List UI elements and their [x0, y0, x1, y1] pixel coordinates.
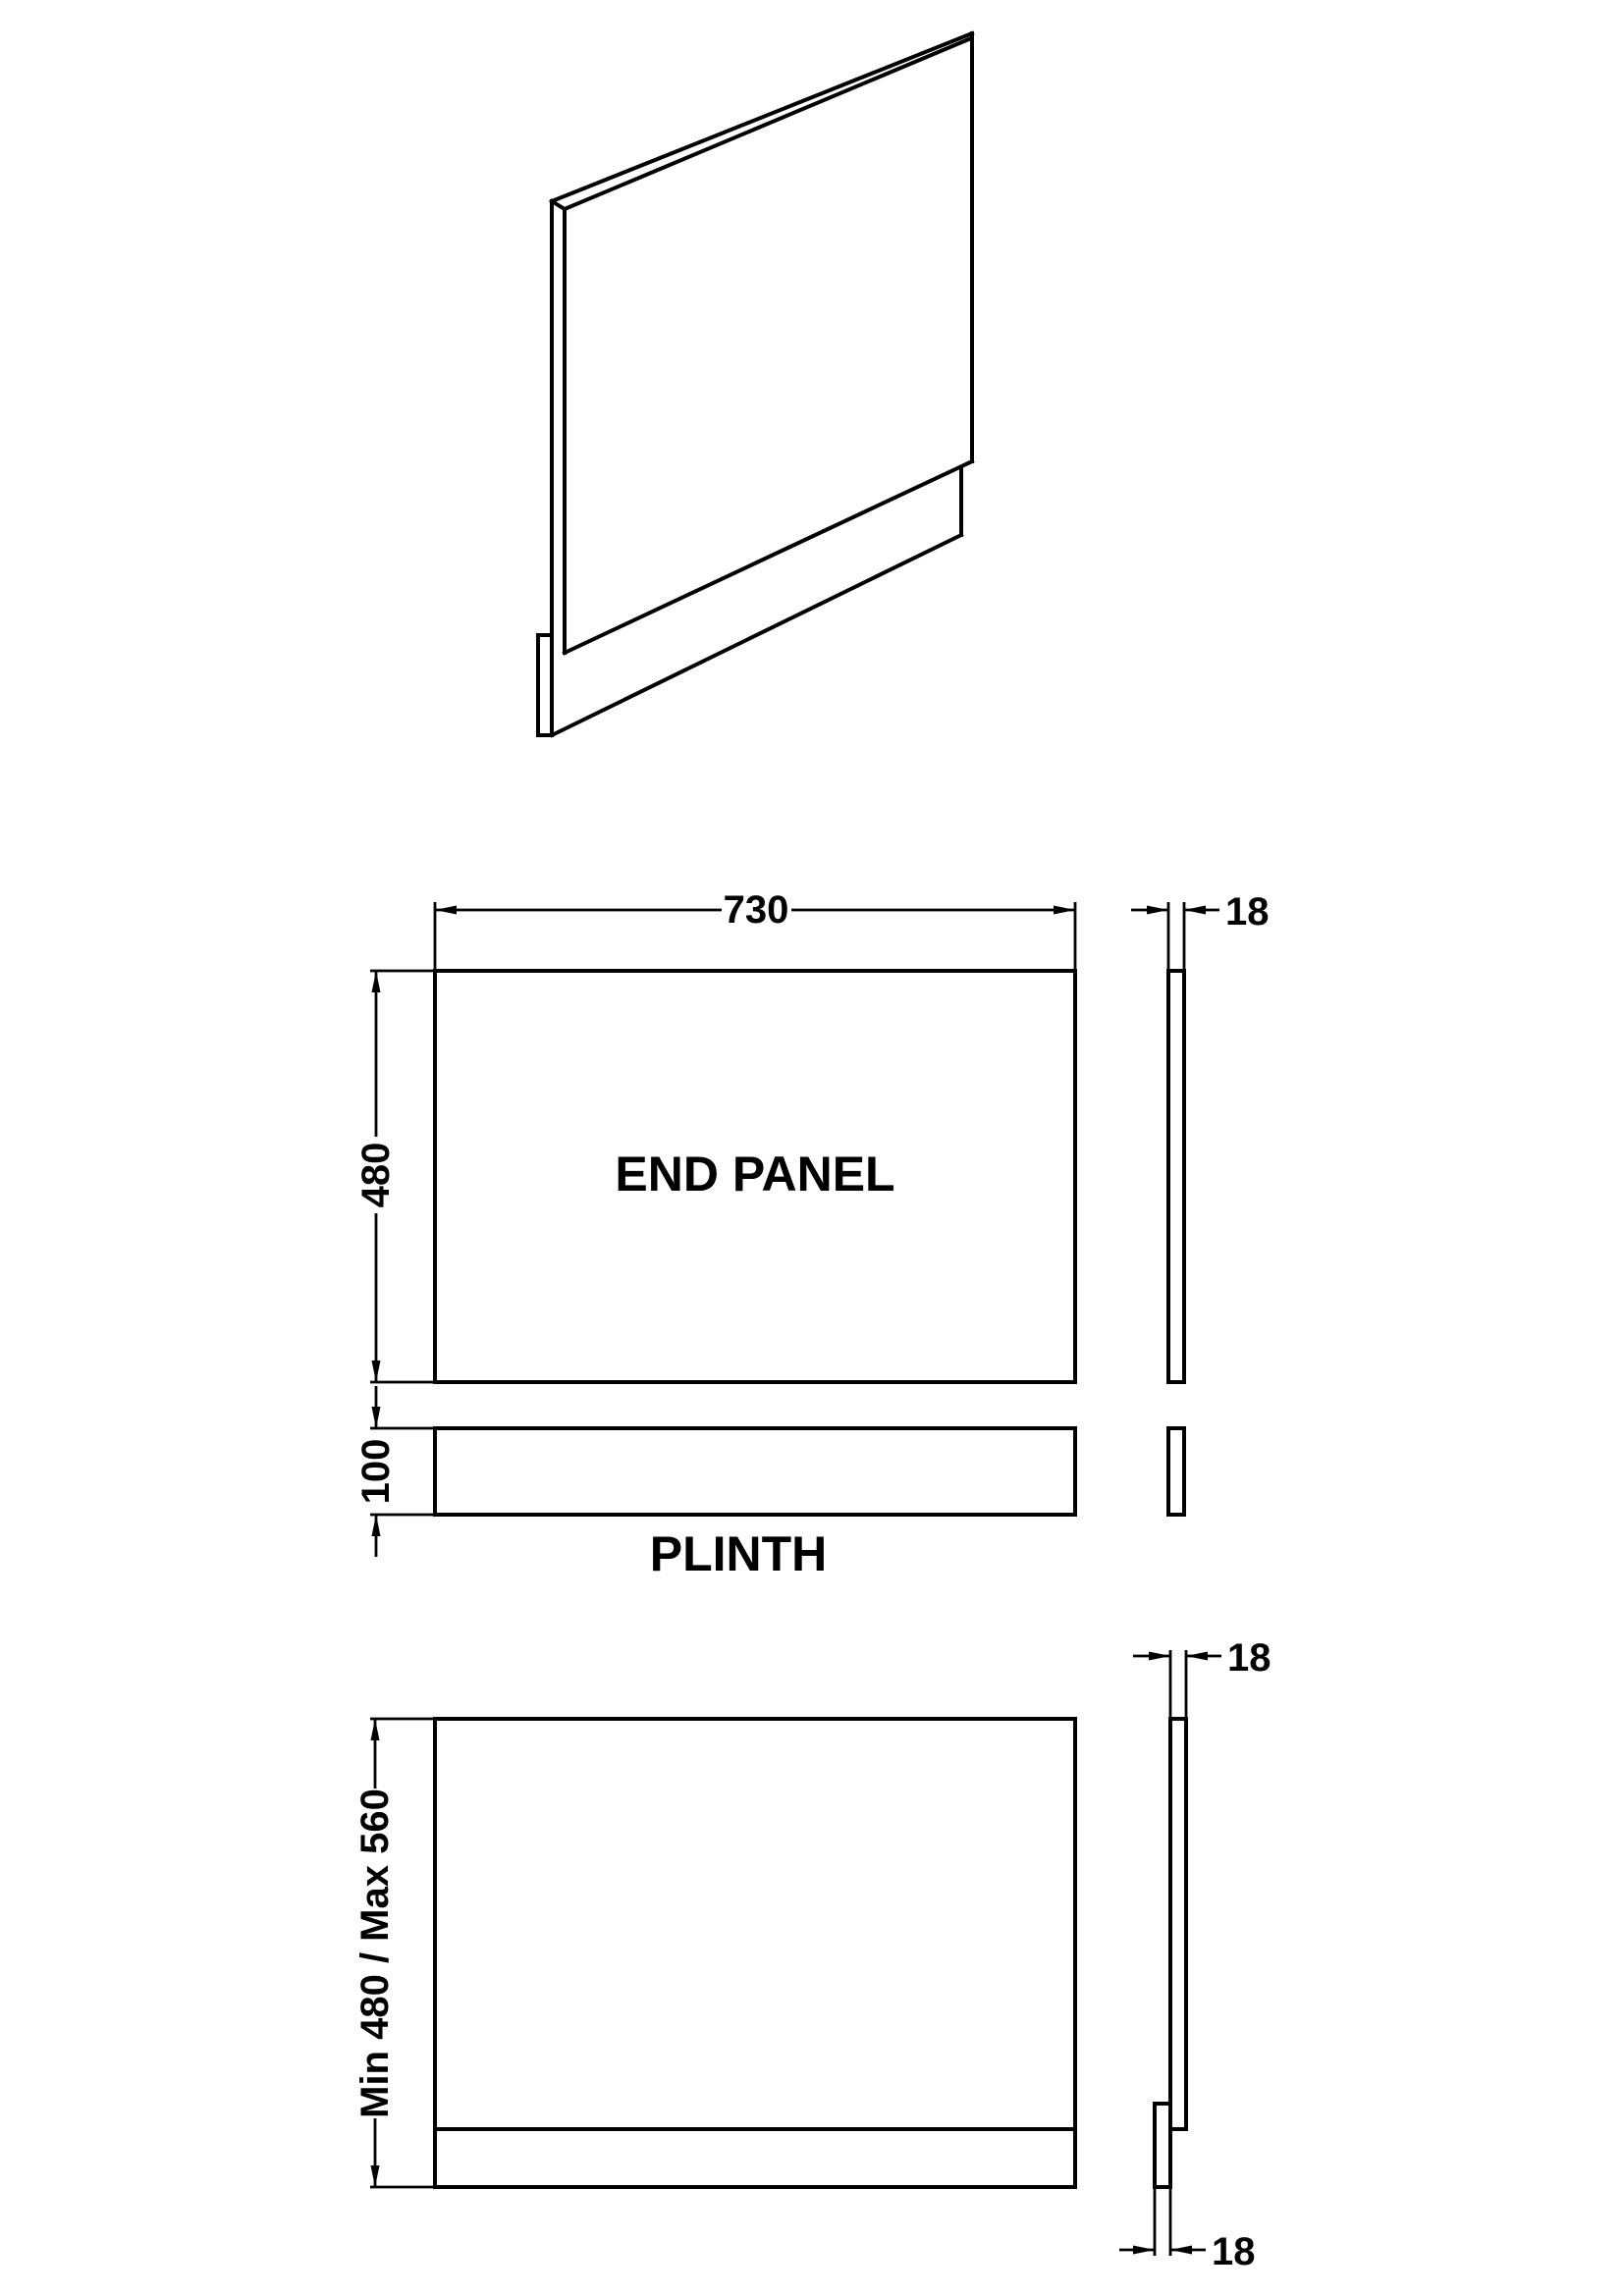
- plinth-side-view: [1168, 1428, 1184, 1515]
- plinth-side-outline: [1168, 1428, 1184, 1515]
- extension-lines: [1168, 902, 1184, 971]
- iso-panel-left-edge: [552, 201, 565, 735]
- dimension-thickness: 18: [1131, 890, 1270, 971]
- arrowhead-right: [1186, 1652, 1208, 1661]
- arrowhead-right: [1170, 2246, 1192, 2255]
- end-panel-label: END PANEL: [615, 1147, 894, 1201]
- plinth-label: PLINTH: [650, 1526, 828, 1581]
- assembled-outline: [435, 1719, 1075, 2187]
- dimension-overall-height: Min 480 / Max 560: [353, 1719, 435, 2187]
- iso-plinth-left-edge: [538, 635, 552, 735]
- arrowhead-bottom: [372, 1515, 381, 1536]
- arrowhead-top: [371, 1719, 380, 1740]
- iso-panel-bottom-edge: [565, 461, 972, 653]
- plinth-front-view: PLINTH 100: [354, 1386, 1075, 1581]
- end-panel-front-view: END PANEL 730 480: [354, 888, 1075, 1382]
- arrowhead-left: [1147, 906, 1168, 915]
- dimension-width: 730: [435, 888, 1075, 971]
- arrowhead-right: [1184, 906, 1206, 915]
- arrowhead-left: [1133, 2246, 1155, 2255]
- assembled-panel-side-outline: [1170, 1719, 1186, 2129]
- extension-lines: [1170, 1650, 1186, 1719]
- plinth-outline: [435, 1428, 1075, 1515]
- assembled-front-view: Min 480 / Max 560: [353, 1719, 1075, 2187]
- isometric-view: [538, 33, 972, 735]
- iso-plinth-bottom-edge: [552, 535, 961, 735]
- arrowhead-bottom: [372, 1361, 381, 1382]
- height-value: 480: [354, 1143, 398, 1208]
- assembled-plinth-side-outline: [1155, 2104, 1170, 2187]
- thickness-value: 18: [1227, 1636, 1271, 1680]
- arrowhead-right: [1054, 906, 1075, 915]
- arrowhead-top: [372, 971, 381, 992]
- dimension-height: 480: [354, 971, 435, 1382]
- overall-height-value: Min 480 / Max 560: [353, 1789, 397, 2118]
- width-value: 730: [724, 888, 789, 932]
- assembled-side-view: 18 18: [1119, 1636, 1271, 2273]
- iso-panel-top-edge: [552, 33, 972, 209]
- technical-drawing-sheet: END PANEL 730 480 18 P: [0, 0, 1623, 2296]
- arrowhead-left: [435, 906, 457, 915]
- dimension-plinth-height: 100: [354, 1386, 435, 1557]
- plinth-height-value: 100: [354, 1439, 398, 1505]
- thickness-value: 18: [1225, 890, 1270, 934]
- extension-lines: [1155, 2187, 1170, 2256]
- arrowhead-left: [1149, 1652, 1170, 1661]
- arrowhead-bottom: [371, 2165, 380, 2187]
- bath-end-panel-drawing: END PANEL 730 480 18 P: [0, 0, 1623, 2296]
- end-panel-side-outline: [1168, 971, 1184, 1382]
- dimension-thickness-top: 18: [1133, 1636, 1271, 1719]
- arrowhead-top: [372, 1407, 381, 1428]
- thickness-value: 18: [1212, 2230, 1256, 2273]
- end-panel-side-view: 18: [1131, 890, 1270, 1382]
- dimension-thickness-bottom: 18: [1119, 2187, 1256, 2273]
